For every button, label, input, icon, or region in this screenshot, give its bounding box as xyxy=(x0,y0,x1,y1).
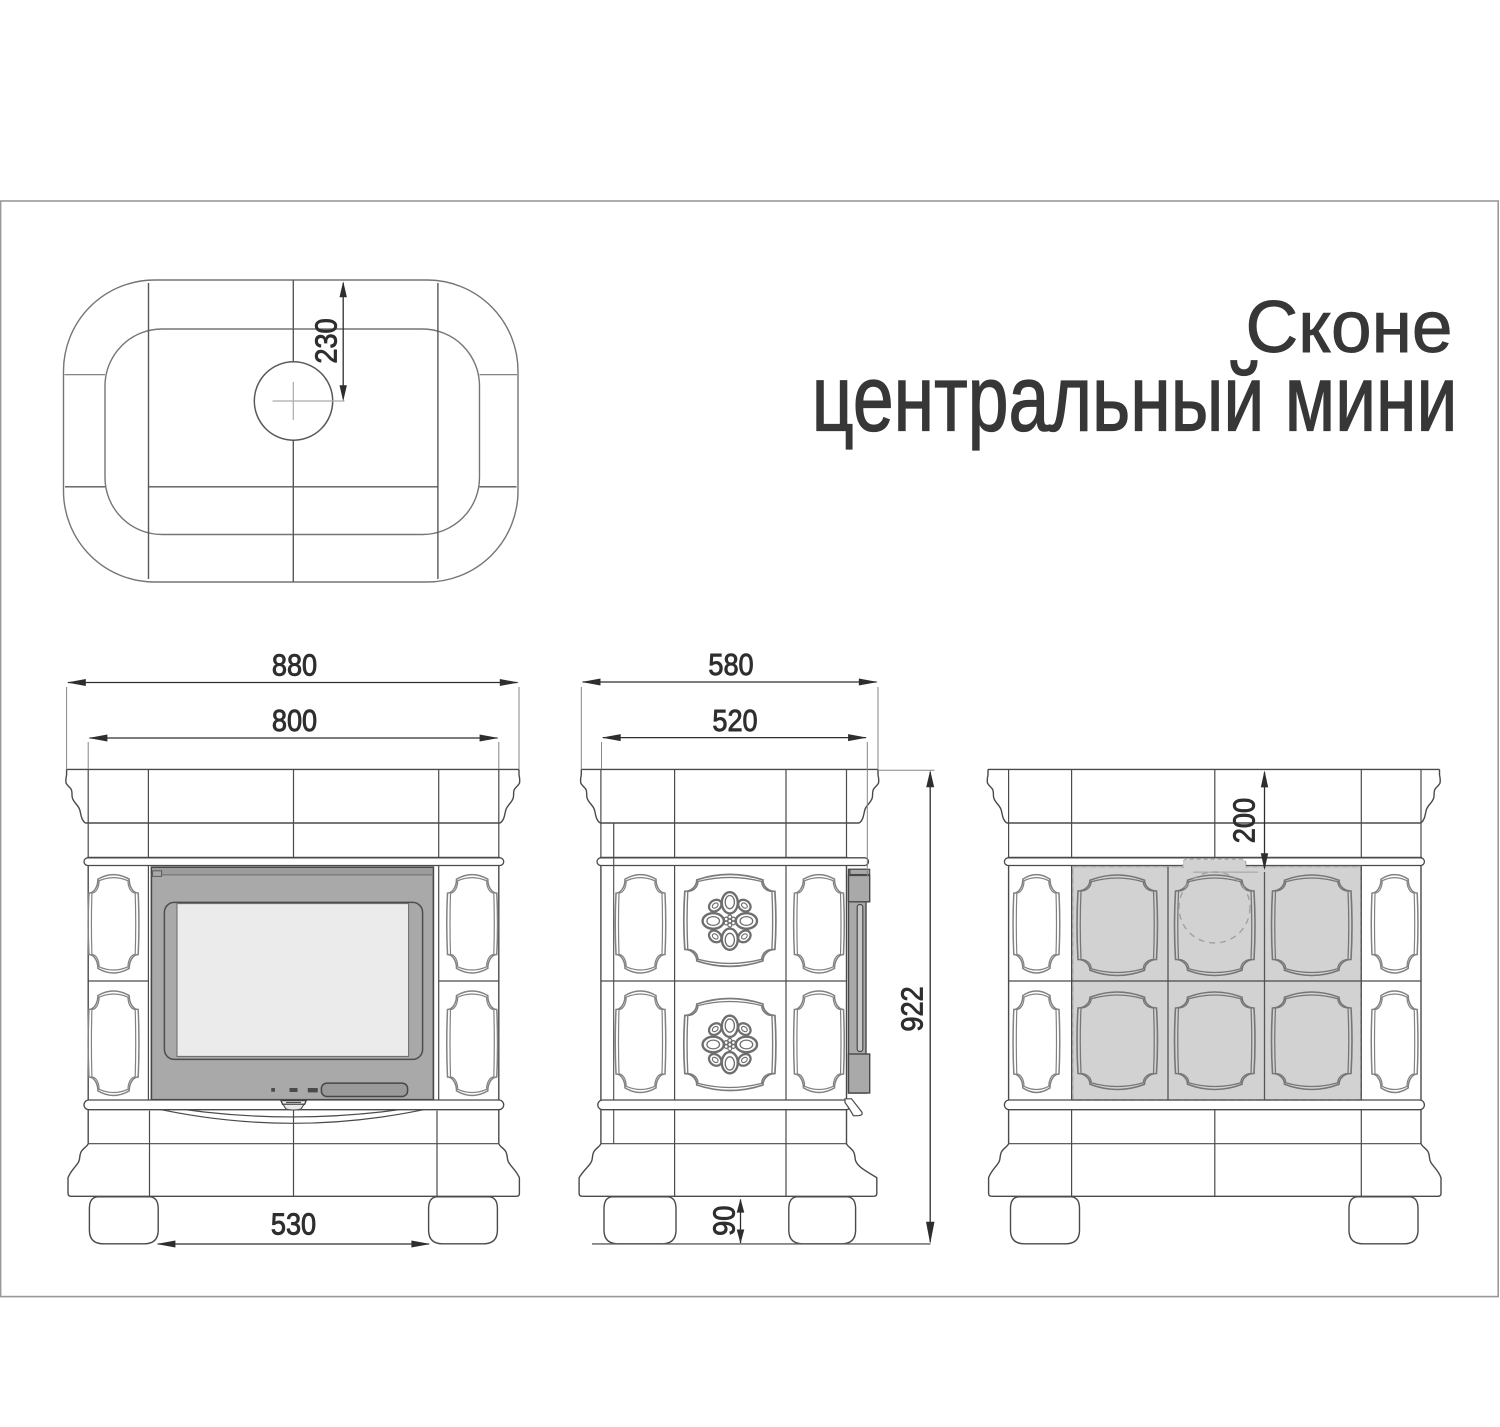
svg-text:90: 90 xyxy=(708,1206,742,1236)
svg-text:922: 922 xyxy=(896,986,930,1031)
svg-text:520: 520 xyxy=(712,705,757,739)
svg-text:800: 800 xyxy=(272,705,317,739)
svg-text:580: 580 xyxy=(708,649,753,683)
svg-text:230: 230 xyxy=(310,318,344,363)
svg-text:центральный мини: центральный мини xyxy=(812,346,1458,451)
svg-text:200: 200 xyxy=(1228,798,1262,843)
svg-text:530: 530 xyxy=(271,1208,316,1242)
svg-text:880: 880 xyxy=(272,649,317,683)
